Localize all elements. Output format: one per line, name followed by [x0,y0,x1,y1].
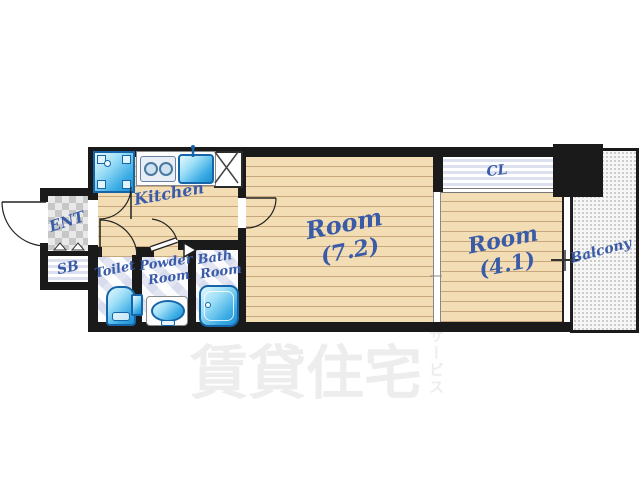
closet-label: CL [486,163,508,179]
floor-plan: 賃貸住宅 サービス [0,0,640,480]
